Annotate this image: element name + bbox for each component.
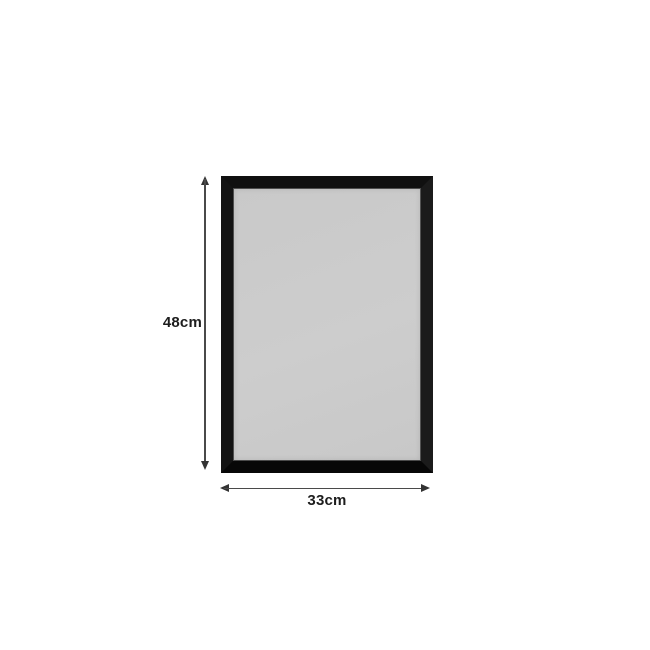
arrow-right-icon bbox=[421, 484, 430, 492]
product-dimension-diagram: 48cm 33cm bbox=[0, 0, 650, 650]
frame-glass-panel bbox=[234, 189, 420, 460]
width-dimension-line bbox=[224, 488, 426, 490]
width-dimension-label: 33cm bbox=[287, 492, 367, 509]
height-dimension-line bbox=[204, 179, 206, 467]
arrow-down-icon bbox=[201, 461, 209, 470]
product-frame bbox=[221, 176, 433, 473]
height-dimension-label: 48cm bbox=[120, 314, 202, 331]
